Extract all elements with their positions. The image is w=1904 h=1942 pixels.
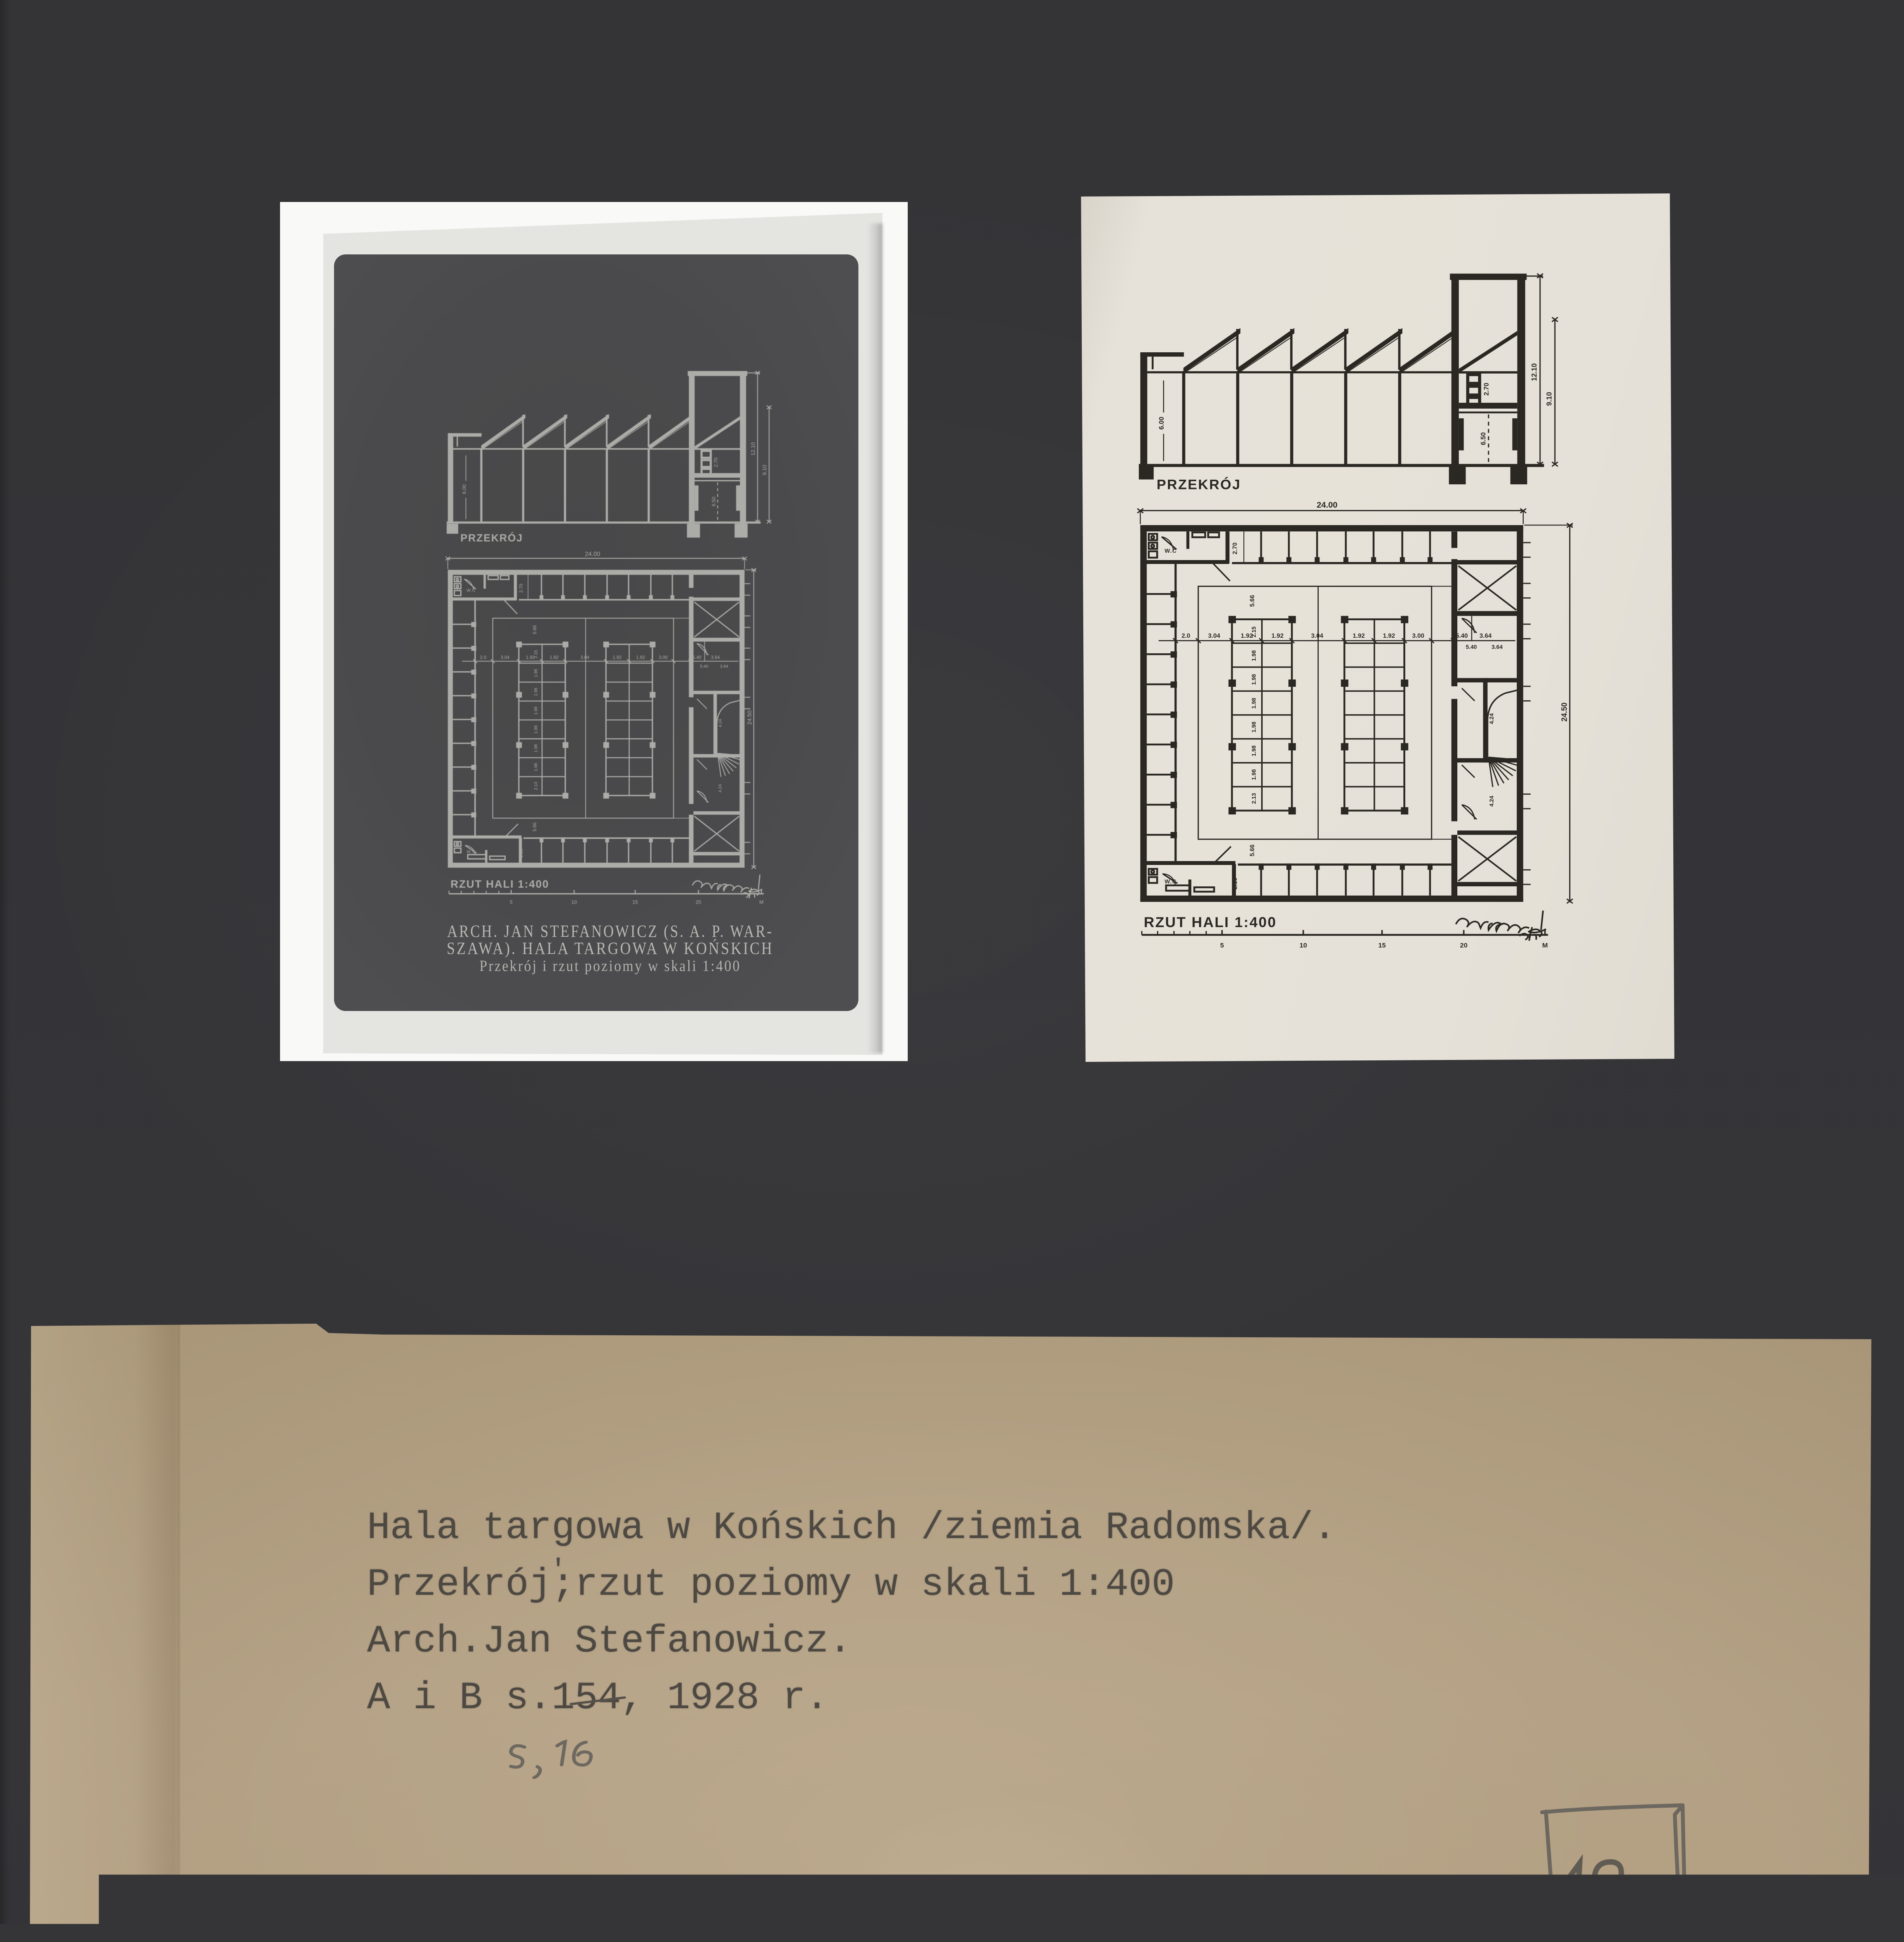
svg-text:20: 20 bbox=[1460, 941, 1467, 949]
svg-text:5: 5 bbox=[510, 899, 512, 905]
svg-text:2.15: 2.15 bbox=[534, 650, 538, 658]
svg-text:1.92: 1.92 bbox=[636, 654, 645, 660]
svg-text:2.13: 2.13 bbox=[1251, 793, 1257, 804]
svg-text:W.C: W.C bbox=[466, 588, 475, 593]
svg-text:12.10: 12.10 bbox=[750, 442, 756, 456]
svg-text:1.98: 1.98 bbox=[534, 669, 538, 677]
svg-text:3.04: 3.04 bbox=[501, 654, 510, 660]
svg-text:PRZEKRÓJ: PRZEKRÓJ bbox=[1157, 477, 1241, 492]
svg-text:5: 5 bbox=[1220, 941, 1224, 949]
svg-text:3.04: 3.04 bbox=[1208, 633, 1220, 639]
svg-text:4.24: 4.24 bbox=[1489, 713, 1495, 724]
svg-text:1.98: 1.98 bbox=[1251, 745, 1257, 756]
svg-text:2.0: 2.0 bbox=[1182, 633, 1190, 639]
svg-text:1.98: 1.98 bbox=[1251, 722, 1257, 733]
svg-text:24.00: 24.00 bbox=[585, 551, 600, 558]
svg-text:2.13: 2.13 bbox=[534, 782, 538, 790]
svg-text:3.64: 3.64 bbox=[1492, 644, 1503, 651]
svg-text:5.66: 5.66 bbox=[1249, 595, 1256, 607]
svg-text:10: 10 bbox=[571, 899, 577, 905]
svg-text:2.70: 2.70 bbox=[713, 458, 719, 467]
svg-text:1.92: 1.92 bbox=[550, 654, 559, 660]
svg-text:2.70: 2.70 bbox=[1232, 543, 1238, 555]
svg-text:W.C: W.C bbox=[466, 849, 475, 854]
svg-text:3.04: 3.04 bbox=[580, 654, 589, 660]
svg-text:1.98: 1.98 bbox=[534, 763, 538, 771]
svg-text:20: 20 bbox=[696, 899, 701, 905]
svg-text:3.00: 3.00 bbox=[1412, 633, 1424, 639]
svg-text:3.64: 3.64 bbox=[711, 654, 720, 660]
svg-text:2.70: 2.70 bbox=[519, 584, 524, 593]
svg-text:2.15: 2.15 bbox=[1251, 626, 1257, 637]
svg-text:5.40: 5.40 bbox=[1466, 644, 1477, 651]
svg-text:5.66: 5.66 bbox=[532, 625, 537, 634]
svg-text:M: M bbox=[1542, 941, 1547, 949]
svg-text:5.40: 5.40 bbox=[693, 654, 701, 660]
svg-text:1.92: 1.92 bbox=[613, 654, 621, 660]
svg-text:1.98: 1.98 bbox=[1251, 769, 1257, 780]
svg-text:1.92: 1.92 bbox=[1353, 633, 1365, 639]
svg-text:24.50: 24.50 bbox=[1560, 703, 1569, 722]
svg-text:4.24: 4.24 bbox=[718, 784, 723, 792]
svg-text:15: 15 bbox=[1378, 941, 1386, 949]
svg-text:1.98: 1.98 bbox=[534, 744, 538, 752]
svg-text:15: 15 bbox=[632, 899, 638, 905]
svg-text:2.70: 2.70 bbox=[1482, 383, 1490, 395]
svg-text:4.24: 4.24 bbox=[718, 719, 723, 727]
svg-text:24.50: 24.50 bbox=[747, 710, 753, 725]
svg-text:PRZEKRÓJ: PRZEKRÓJ bbox=[461, 532, 523, 544]
svg-text:1.98: 1.98 bbox=[534, 706, 538, 715]
svg-text:3.00: 3.00 bbox=[659, 654, 668, 660]
svg-text:1.98: 1.98 bbox=[534, 726, 538, 734]
svg-text:2.0: 2.0 bbox=[480, 654, 487, 660]
svg-text:6.00: 6.00 bbox=[461, 484, 467, 494]
svg-text:6.00: 6.00 bbox=[1157, 417, 1165, 430]
svg-text:W.C: W.C bbox=[1164, 548, 1177, 554]
svg-text:24.00: 24.00 bbox=[1317, 501, 1338, 510]
svg-text:5.66: 5.66 bbox=[532, 822, 537, 831]
svg-text:1.98: 1.98 bbox=[1251, 674, 1257, 685]
svg-text:5.66: 5.66 bbox=[1249, 844, 1256, 856]
svg-text:10: 10 bbox=[1300, 941, 1307, 949]
svg-text:5.40: 5.40 bbox=[1456, 633, 1468, 639]
svg-text:1.98: 1.98 bbox=[1251, 650, 1257, 661]
svg-text:3.04: 3.04 bbox=[1311, 633, 1323, 639]
svg-text:5.40: 5.40 bbox=[700, 664, 708, 669]
svg-text:3.64: 3.64 bbox=[720, 664, 728, 669]
svg-text:9.10: 9.10 bbox=[1545, 392, 1553, 406]
svg-text:RZUT HALI 1:400: RZUT HALI 1:400 bbox=[1144, 914, 1277, 930]
svg-text:12.10: 12.10 bbox=[1530, 363, 1538, 381]
svg-text:M: M bbox=[759, 899, 764, 905]
svg-text:9.10: 9.10 bbox=[761, 465, 768, 475]
svg-text:W.C: W.C bbox=[1164, 879, 1177, 885]
svg-text:6.50: 6.50 bbox=[711, 497, 717, 506]
svg-text:1.92: 1.92 bbox=[1271, 633, 1283, 639]
svg-text:6.50: 6.50 bbox=[1479, 432, 1487, 445]
svg-text:RZUT HALI 1:400: RZUT HALI 1:400 bbox=[451, 878, 549, 890]
svg-text:1.98: 1.98 bbox=[1251, 698, 1257, 709]
svg-text:4.24: 4.24 bbox=[1489, 795, 1495, 807]
svg-text:1.92: 1.92 bbox=[1383, 633, 1395, 639]
svg-text:3.64: 3.64 bbox=[1479, 633, 1492, 639]
svg-text:1.98: 1.98 bbox=[534, 688, 538, 696]
